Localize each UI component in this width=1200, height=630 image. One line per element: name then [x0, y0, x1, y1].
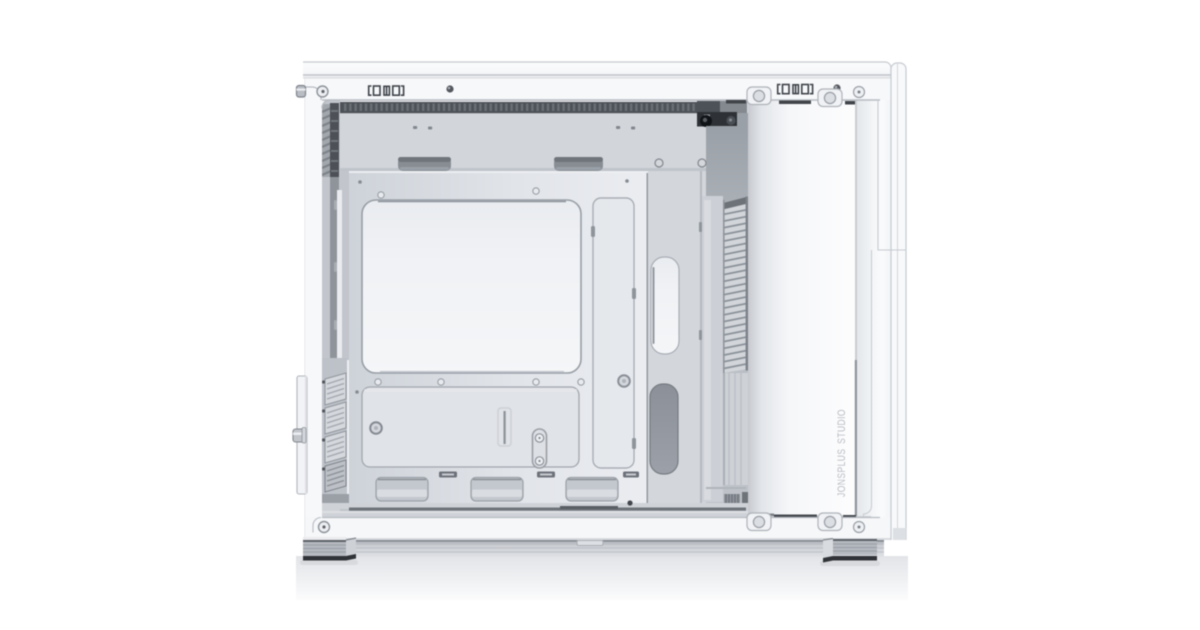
svg-text:JONSPLUS STUDIO: JONSPLUS STUDIO — [836, 409, 848, 497]
